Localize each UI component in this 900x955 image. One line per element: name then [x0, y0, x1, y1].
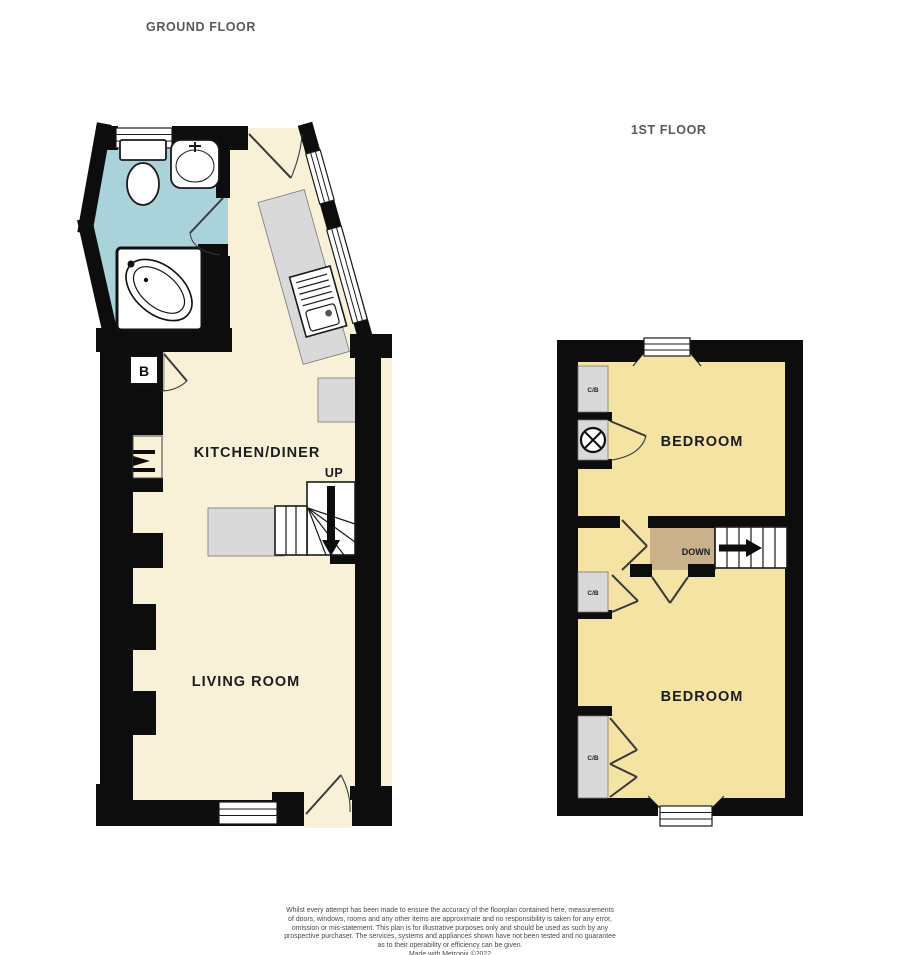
disclaimer-line: prospective purchaser. The services, sys…	[0, 933, 900, 942]
disclaimer-line: Whilst every attempt has been made to en…	[0, 907, 900, 916]
first-floor-plan: C/B C/B C/B	[557, 338, 803, 826]
basin-sink	[171, 140, 219, 188]
cupboard-bottom-label: C/B	[587, 755, 599, 762]
stairs-up-label: UP	[325, 466, 343, 480]
disclaimer-line: omission or mis-statement. This plan is …	[0, 925, 900, 934]
bedroom-back-window	[648, 796, 724, 826]
living-room-label: LIVING ROOM	[192, 674, 300, 690]
kitchen-diner-label: KITCHEN/DINER	[194, 445, 321, 461]
stairs-down	[715, 527, 787, 570]
disclaimer-line: as to their operability or efficiency ca…	[0, 942, 900, 951]
disclaimer-line: of doors, windows, rooms and any other i…	[0, 916, 900, 925]
cylinder-tank	[578, 420, 608, 460]
living-room-window	[219, 802, 277, 824]
back-door-opening	[304, 800, 352, 828]
disclaimer: Whilst every attempt has been made to en…	[0, 907, 900, 955]
floorplan-page: GROUND FLOOR 1ST FLOOR	[0, 0, 900, 955]
cupboard-top-label: C/B	[587, 387, 599, 394]
bathtub	[114, 247, 203, 333]
stairs-down-label: DOWN	[682, 547, 711, 557]
bedroom-back-label: BEDROOM	[661, 689, 744, 705]
kitchen-table	[208, 508, 284, 556]
boiler-label: B	[139, 363, 149, 379]
bedroom-front-label: BEDROOM	[661, 434, 744, 450]
ground-floor-plan: B	[85, 126, 392, 828]
bath-tap-icon	[128, 261, 135, 268]
floorplan-drawing: B	[0, 0, 900, 900]
cupboard-bottom: C/B	[578, 716, 608, 798]
metropix-credit: Made with Metropix ©2022	[0, 951, 900, 955]
boiler: B	[130, 356, 158, 384]
cupboard-middle: C/B	[578, 572, 608, 612]
cupboard-middle-label: C/B	[587, 590, 599, 597]
cupboard-top: C/B	[578, 366, 608, 412]
